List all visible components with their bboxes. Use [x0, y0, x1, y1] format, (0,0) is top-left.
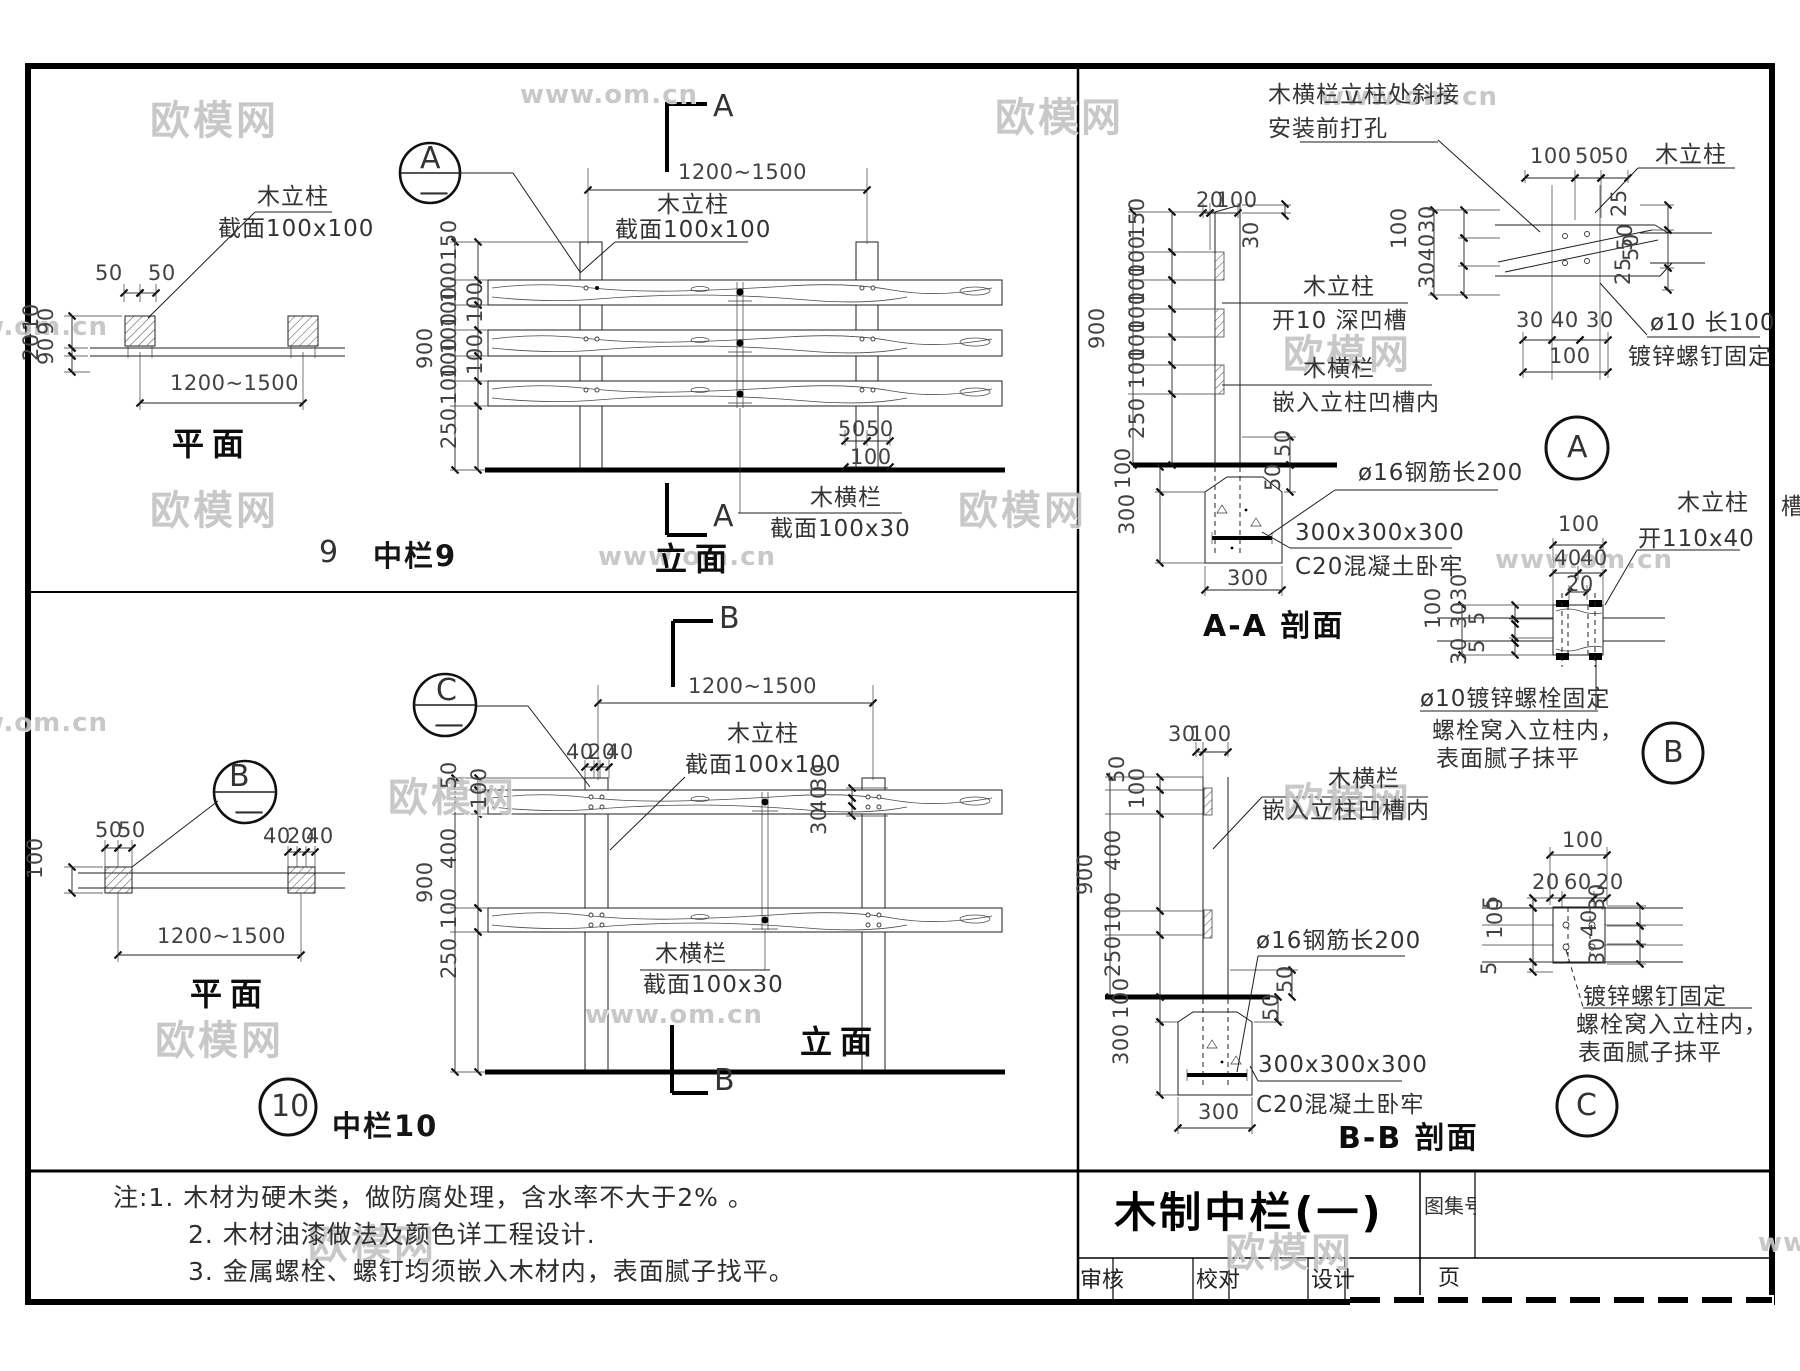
part-label: ø16钢筋长200	[1256, 930, 1421, 953]
detail-letter: B	[1663, 738, 1684, 768]
dim-label: 100	[1423, 587, 1444, 629]
bubble-number: 10	[271, 1092, 309, 1122]
part-label: ø16钢筋长200	[1358, 462, 1523, 485]
dim-label: 900	[415, 327, 436, 369]
dim-label: 30	[809, 807, 830, 835]
dim-label: 150	[439, 219, 460, 261]
dim-label: 50	[838, 419, 866, 440]
dim-label: 100	[469, 767, 490, 809]
dim-label: 300	[1117, 493, 1138, 535]
dim-label: 30	[1417, 261, 1438, 289]
review-label: 审核	[1080, 1270, 1124, 1292]
dim-label: 50	[1273, 429, 1294, 457]
bubble-number: 9	[319, 538, 338, 568]
section-marker: B	[719, 604, 740, 634]
dim-label: 25	[1613, 257, 1634, 285]
dim-label: 90	[36, 337, 57, 365]
view-title: 平面	[172, 428, 252, 460]
dim-label: 25	[1609, 189, 1630, 217]
dim-label: 100	[1190, 724, 1232, 745]
part-label: 木立柱	[1303, 276, 1375, 299]
note-line: 注:1. 木材为硬木类，做防腐处理，含水率不大于2% 。	[113, 1185, 754, 1210]
dim-label: 40	[1554, 548, 1582, 569]
dim-label: 100	[465, 281, 486, 323]
dim-label: 30	[1587, 883, 1608, 911]
dim-label: 1200~1500	[688, 676, 817, 697]
view-title: 立面	[800, 1026, 880, 1058]
section-marker: B	[714, 1066, 735, 1096]
dim-label: 50	[1263, 463, 1284, 491]
part-label: 嵌入立柱凹槽内	[1262, 800, 1430, 823]
drawing-sheet: 欧模网 www.om.cn 欧模网 www.om.cn www.om.cn 欧模…	[0, 0, 1800, 1371]
detail-ref-letter: B	[229, 762, 250, 792]
dim-label: 50	[148, 263, 176, 284]
dim-label: 100	[1216, 190, 1258, 211]
detail-letter: A	[1567, 433, 1588, 463]
part-label: 300x300x300	[1258, 1054, 1428, 1077]
dim-label: 400	[1103, 829, 1124, 871]
part-label: 木立柱	[1677, 492, 1749, 515]
dim-label: 30	[1417, 205, 1438, 233]
dim-label: 100	[465, 333, 486, 375]
dim-label: 40	[1551, 310, 1579, 331]
watermark: www.om.cn	[0, 708, 108, 738]
dim-label: 20	[1532, 872, 1560, 893]
dim-label: 40	[1579, 909, 1600, 937]
part-label: 截面100x30	[643, 974, 784, 997]
dim-label: 100	[1562, 830, 1604, 851]
note-label: 安装前打孔	[1268, 118, 1388, 141]
part-label: 木立柱	[657, 194, 729, 217]
part-label: C20混凝土卧牢	[1256, 1094, 1424, 1117]
watermark: 欧模网	[150, 478, 279, 536]
watermark: 欧模网	[958, 478, 1087, 536]
dim-label: 100	[1111, 977, 1132, 1019]
dim-label: 50	[95, 263, 123, 284]
dim-label: 400	[439, 827, 460, 869]
dim-label: 5	[1479, 961, 1500, 975]
part-label: 截面100x100	[218, 218, 374, 241]
part-label: 300x300x300	[1295, 522, 1465, 545]
part-label: 嵌入立柱凹槽内	[1272, 392, 1440, 415]
dim-label: 30	[1449, 637, 1470, 665]
edge-text: 槽	[1781, 496, 1800, 519]
note-line: 3. 金属螺栓、螺钉均须嵌入木材内，表面腻子找平。	[188, 1259, 795, 1284]
dim-label: 900	[1087, 307, 1108, 349]
page-label: 页	[1438, 1268, 1460, 1290]
view-title: 平面	[190, 978, 270, 1010]
dim-label: 50	[1275, 965, 1296, 993]
dim-label: 100	[1127, 347, 1148, 389]
part-label: 镀锌螺钉固定	[1628, 346, 1772, 369]
part-label: 木横栏	[810, 487, 882, 510]
part-label: 螺栓窝入立柱内，	[1576, 1014, 1768, 1037]
dim-label: 30	[1241, 221, 1262, 249]
dim-label: 100	[1389, 207, 1410, 249]
dim-label: 900	[1075, 853, 1096, 895]
dim-label: 50	[439, 761, 460, 789]
section-title: A-A 剖面	[1203, 612, 1344, 642]
dim-label: 1200~1500	[157, 926, 286, 947]
part-label: 截面100x30	[770, 518, 911, 541]
dim-label: 100	[1127, 767, 1148, 809]
dim-label: 40	[1417, 233, 1438, 261]
part-label: ø10 长100	[1650, 312, 1776, 335]
dim-label: 50	[1261, 993, 1282, 1021]
dim-label: 100	[1113, 447, 1134, 489]
dim-label: 30	[1587, 937, 1608, 965]
part-label: 截面100x100	[615, 219, 771, 242]
dim-label: 900	[415, 861, 436, 903]
part-label: 表面腻子抹平	[1436, 748, 1580, 771]
bubble-label: 中栏9	[373, 542, 457, 571]
dim-label: 300	[1111, 1023, 1132, 1065]
part-label: 镀锌螺钉固定	[1583, 986, 1727, 1009]
watermark: 欧模网	[155, 1008, 284, 1066]
note-label: 木横栏立柱处斜接	[1268, 84, 1460, 107]
section-marker: A	[713, 92, 734, 122]
dim-label: 40	[606, 742, 634, 763]
sheet-title: 木制中栏(一)	[1078, 1192, 1420, 1234]
section-marker: A	[713, 502, 734, 532]
part-label: 木横栏	[1303, 358, 1375, 381]
part-label: 开10 深凹槽	[1272, 310, 1408, 333]
dim-label: 300	[1227, 568, 1269, 589]
dim-label: 100	[1103, 891, 1124, 933]
dim-label: 1200~1500	[678, 162, 807, 183]
dim-label: 40	[306, 826, 334, 847]
watermark: www.om.cn	[1758, 1228, 1800, 1258]
detail-ref-letter: C	[436, 676, 457, 706]
watermark: www.om.cn	[585, 1000, 763, 1030]
part-label: ø10镀锌螺栓固定	[1420, 688, 1610, 711]
part-label: 木横栏	[655, 943, 727, 966]
screws	[589, 795, 881, 927]
detail-letter: C	[1576, 1091, 1597, 1121]
dim-label: 100	[25, 837, 46, 879]
dim-label: 30	[1586, 310, 1614, 331]
detail-ref-dash: —	[234, 797, 264, 827]
section-title: B-B 剖面	[1338, 1124, 1479, 1154]
dim-label: 90	[36, 307, 57, 335]
bubble-label: 中栏10	[332, 1112, 438, 1141]
dim-label: 100	[1485, 897, 1506, 939]
watermark: 欧模网	[150, 88, 279, 146]
view-title: 立面	[655, 543, 735, 575]
part-label: 螺栓窝入立柱内，	[1432, 720, 1624, 743]
dim-label: 30	[1449, 601, 1470, 629]
watermark: 欧模网	[995, 85, 1124, 143]
dim-label: 100	[1549, 346, 1591, 367]
proof-label: 校对	[1196, 1270, 1240, 1292]
part-label: 开110x40	[1638, 528, 1755, 551]
part-label: 表面腻子抹平	[1578, 1042, 1722, 1065]
dim-label: 50	[1575, 146, 1603, 167]
dim-label: 100	[1530, 146, 1572, 167]
dim-label: 250	[1103, 935, 1124, 977]
note-line: 2. 木材油漆做法及颜色详工程设计.	[188, 1222, 596, 1247]
atlas-no-label: 图集号	[1424, 1196, 1476, 1216]
dim-label: 250	[1127, 397, 1148, 439]
part-label: 木立柱	[1655, 144, 1727, 167]
dim-label: 50	[118, 820, 146, 841]
dim-label: 300	[1198, 1102, 1240, 1123]
part-label: 木立柱	[257, 186, 329, 209]
dim-label: 30	[1516, 310, 1544, 331]
dim-label: 100	[439, 887, 460, 929]
dim-label: 250	[439, 937, 460, 979]
dim-label: 100	[1558, 514, 1600, 535]
dim-label: 100	[850, 447, 892, 468]
dim-label: 150	[1127, 197, 1148, 239]
dim-label: 100	[439, 363, 460, 405]
detail-ref-dash: —	[434, 710, 464, 740]
detail-ref-dash: —	[419, 178, 449, 208]
dim-label: 20	[1566, 574, 1594, 595]
watermark: www.om.cn	[520, 80, 698, 110]
dim-label: 50	[1601, 146, 1629, 167]
dim-label: 30	[1449, 573, 1470, 601]
design-label: 设计	[1311, 1270, 1355, 1292]
dim-label: 250	[439, 407, 460, 449]
detail-ref-letter: A	[420, 144, 441, 174]
part-label: 木横栏	[1328, 768, 1400, 791]
dim-label: 40	[1580, 548, 1608, 569]
part-label: C20混凝土卧牢	[1295, 556, 1463, 579]
dim-label: 50	[866, 419, 894, 440]
dim-label: 1200~1500	[170, 373, 299, 394]
part-label: 木立柱	[727, 723, 799, 746]
